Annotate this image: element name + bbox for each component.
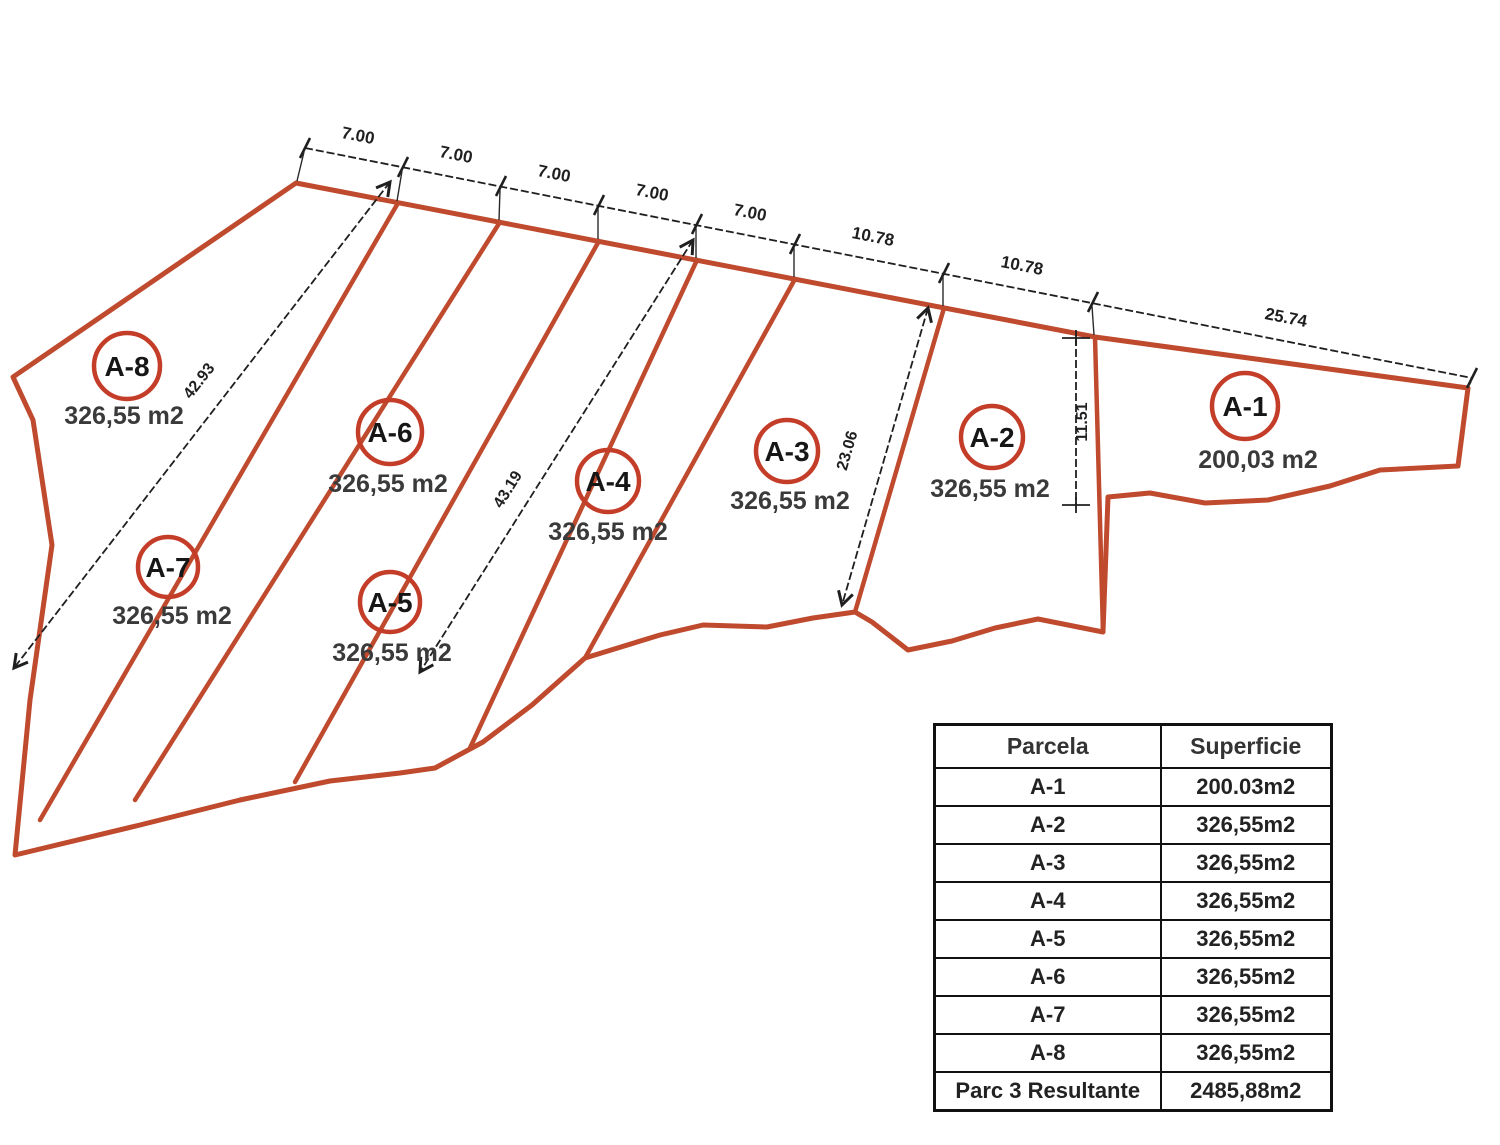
table-cell-parcela: A-5 [935, 920, 1161, 958]
parcel-id-label: A-8 [104, 351, 149, 382]
table-cell-superficie: 326,55m2 [1161, 844, 1332, 882]
parcel-A-1: A-1200,03 m2 [1198, 373, 1318, 474]
drawing-canvas: 7.007.007.007.007.0010.7810.7825.7442.93… [0, 0, 1500, 1145]
table-cell-parcela: A-8 [935, 1034, 1161, 1072]
table-header-cell: Superficie [1161, 725, 1332, 769]
table-row: A-6326,55m2 [935, 958, 1332, 996]
table-cell-parcela: A-7 [935, 996, 1161, 1034]
parcel-A-2: A-2326,55 m2 [930, 406, 1050, 503]
parcel-id-label: A-7 [145, 552, 190, 583]
table-cell-superficie: 326,55m2 [1161, 996, 1332, 1034]
table-cell-superficie: 326,55m2 [1161, 920, 1332, 958]
parcel-area-label: 200,03 m2 [1198, 446, 1318, 474]
division-line [295, 241, 599, 782]
division-line [40, 203, 398, 820]
dimension-label: 10.78 [850, 223, 895, 250]
table-cell-superficie: 2485,88m2 [1161, 1072, 1332, 1111]
table-header-row: ParcelaSuperficie [935, 725, 1332, 769]
dimension-23-06 [842, 308, 928, 605]
table-row: A-3326,55m2 [935, 844, 1332, 882]
parcel-id-label: A-4 [585, 466, 631, 497]
table-row: Parc 3 Resultante2485,88m2 [935, 1072, 1332, 1111]
parcel-A-5: A-5326,55 m2 [332, 572, 452, 667]
dimension-label: 7.00 [536, 161, 572, 186]
table-cell-superficie: 200.03m2 [1161, 768, 1332, 806]
table-cell-superficie: 326,55m2 [1161, 882, 1332, 920]
table-row: A-2326,55m2 [935, 806, 1332, 844]
parcel-id-label: A-1 [1222, 391, 1267, 422]
table-cell-parcela: Parc 3 Resultante [935, 1072, 1161, 1111]
table-row: A-8326,55m2 [935, 1034, 1332, 1072]
table-cell-parcela: A-6 [935, 958, 1161, 996]
parcel-A-4: A-4326,55 m2 [548, 450, 668, 546]
dimension-label: 43.19 [490, 468, 526, 511]
top-dimension-line [305, 148, 1472, 378]
dimension-43-19 [420, 240, 693, 672]
parcel-id-label: A-5 [367, 587, 412, 618]
dimension-label: 42.93 [180, 360, 218, 402]
dimension-label: 7.00 [438, 142, 474, 167]
dimension-label: 11.51 [1074, 402, 1091, 441]
dimension-label: 25.74 [1263, 304, 1309, 331]
parcel-A-8: A-8326,55 m2 [64, 333, 184, 430]
table-cell-parcela: A-3 [935, 844, 1161, 882]
table-cell-parcela: A-2 [935, 806, 1161, 844]
parcel-A-3: A-3326,55 m2 [730, 420, 850, 515]
area-table: ParcelaSuperficie A-1200.03m2A-2326,55m2… [933, 723, 1333, 1112]
table-header-cell: Parcela [935, 725, 1161, 769]
table-cell-superficie: 326,55m2 [1161, 806, 1332, 844]
dimension-labels: 7.007.007.007.007.0010.7810.7825.7442.93… [180, 123, 1309, 511]
parcel-area-label: 326,55 m2 [730, 487, 850, 515]
parcel-id-label: A-6 [367, 417, 412, 448]
division-line [1095, 337, 1103, 632]
dimension-label: 7.00 [732, 200, 768, 225]
parcel-id-label: A-3 [764, 436, 809, 467]
table-row: A-1200.03m2 [935, 768, 1332, 806]
dimension-label: 7.00 [634, 180, 670, 205]
parcel-A-6: A-6326,55 m2 [328, 400, 448, 498]
parcel-area-label: 326,55 m2 [332, 639, 452, 667]
table-row: A-4326,55m2 [935, 882, 1332, 920]
division-line [855, 308, 944, 612]
extension-lines [297, 152, 1471, 387]
table-cell-parcela: A-1 [935, 768, 1161, 806]
parcel-area-label: 326,55 m2 [328, 470, 448, 498]
dimension-label: 23.06 [834, 429, 861, 472]
table-row: A-7326,55m2 [935, 996, 1332, 1034]
dimension-label: 7.00 [340, 123, 376, 148]
parcel-area-label: 326,55 m2 [64, 402, 184, 430]
parcel-area-label: 326,55 m2 [112, 602, 232, 630]
parcel-area-label: 326,55 m2 [930, 475, 1050, 503]
dimension-label: 10.78 [999, 252, 1044, 279]
table-cell-parcela: A-4 [935, 882, 1161, 920]
parcel-A-7: A-7326,55 m2 [112, 537, 232, 630]
parcel-area-label: 326,55 m2 [548, 518, 668, 546]
parcel-id-label: A-2 [969, 422, 1014, 453]
table-cell-superficie: 326,55m2 [1161, 958, 1332, 996]
table-row: A-5326,55m2 [935, 920, 1332, 958]
table-cell-superficie: 326,55m2 [1161, 1034, 1332, 1072]
